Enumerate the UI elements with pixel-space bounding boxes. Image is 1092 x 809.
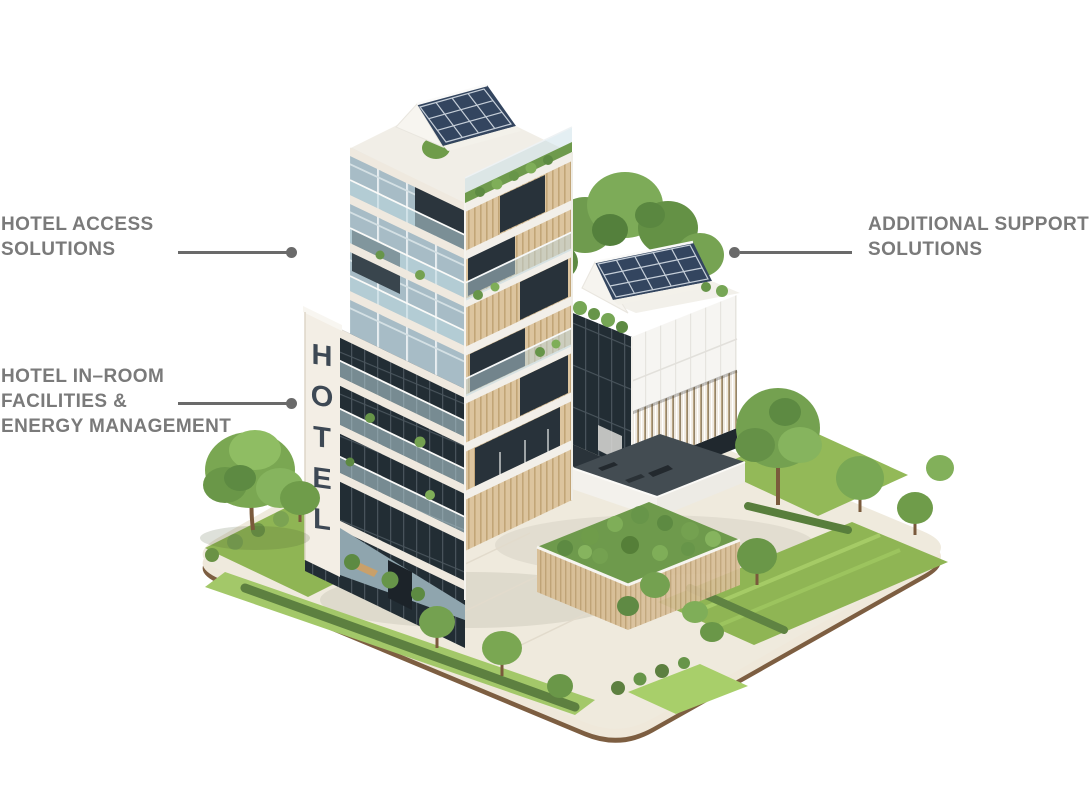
label-line: HOTEL IN–ROOM: [1, 364, 231, 389]
label-line: SOLUTIONS: [868, 237, 1089, 262]
label-line: ADDITIONAL SUPPORT: [868, 212, 1089, 237]
infographic-canvas: HOTEL HOTEL ACCESS SOLUTIONS HOTEL IN–RO…: [0, 0, 1092, 809]
leader-line-access: [178, 251, 288, 254]
leader-line-inroom: [178, 402, 288, 405]
leader-line-support: [740, 251, 852, 254]
label-line: ENERGY MANAGEMENT: [1, 414, 231, 439]
label-line: SOLUTIONS: [1, 237, 154, 262]
label-additional-support-solutions: ADDITIONAL SUPPORT SOLUTIONS: [868, 212, 1089, 262]
leader-dot-access: [286, 247, 297, 258]
label-hotel-access-solutions: HOTEL ACCESS SOLUTIONS: [1, 212, 154, 262]
label-line: HOTEL ACCESS: [1, 212, 154, 237]
leader-dot-inroom: [286, 398, 297, 409]
leader-dot-support: [729, 247, 740, 258]
hotel-sign: HOTEL: [304, 333, 340, 543]
